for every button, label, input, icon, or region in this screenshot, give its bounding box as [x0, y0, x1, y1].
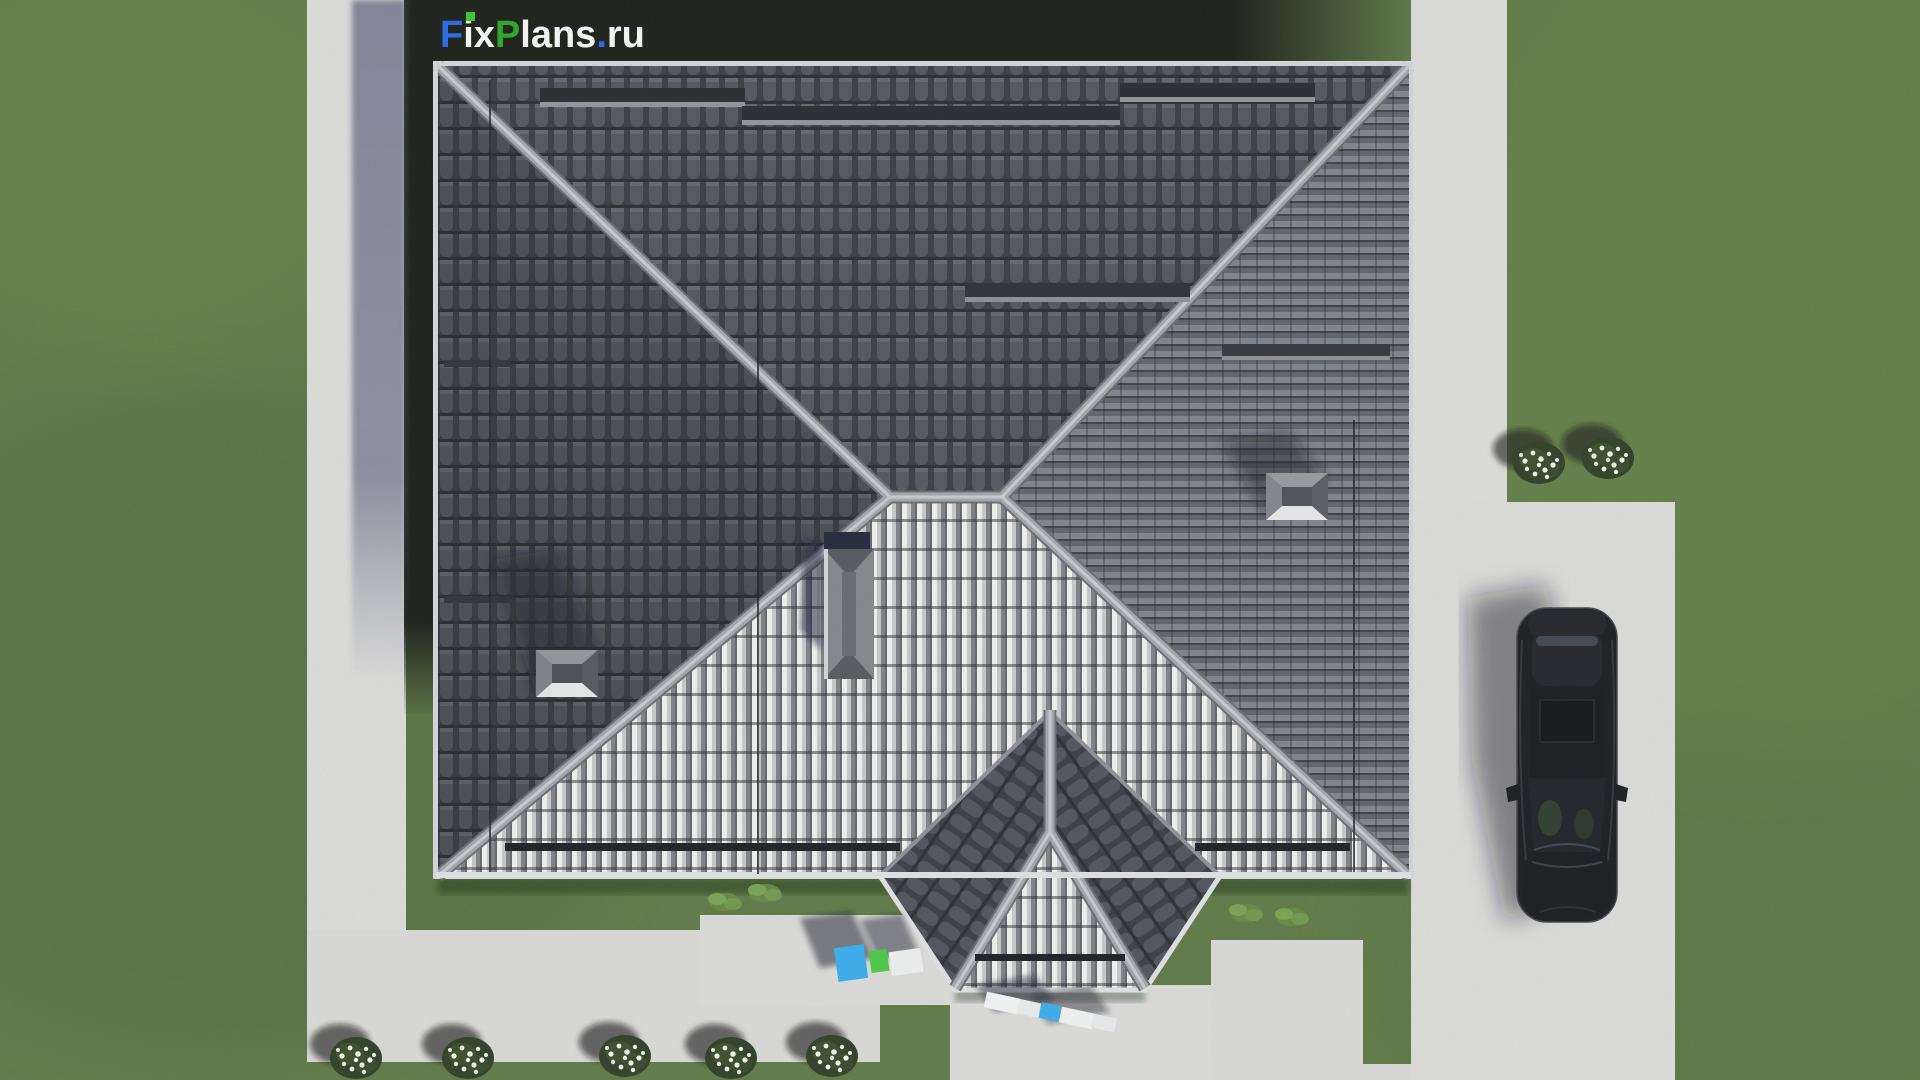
- watermark-logo: FixPlans.ru: [440, 12, 645, 56]
- i-dot-accent: [466, 12, 475, 21]
- film-grain: [0, 0, 1920, 1080]
- aerial-render: FixPlans.ru: [0, 0, 1920, 1080]
- scene-canvas: FixPlans.ru: [0, 0, 1920, 1080]
